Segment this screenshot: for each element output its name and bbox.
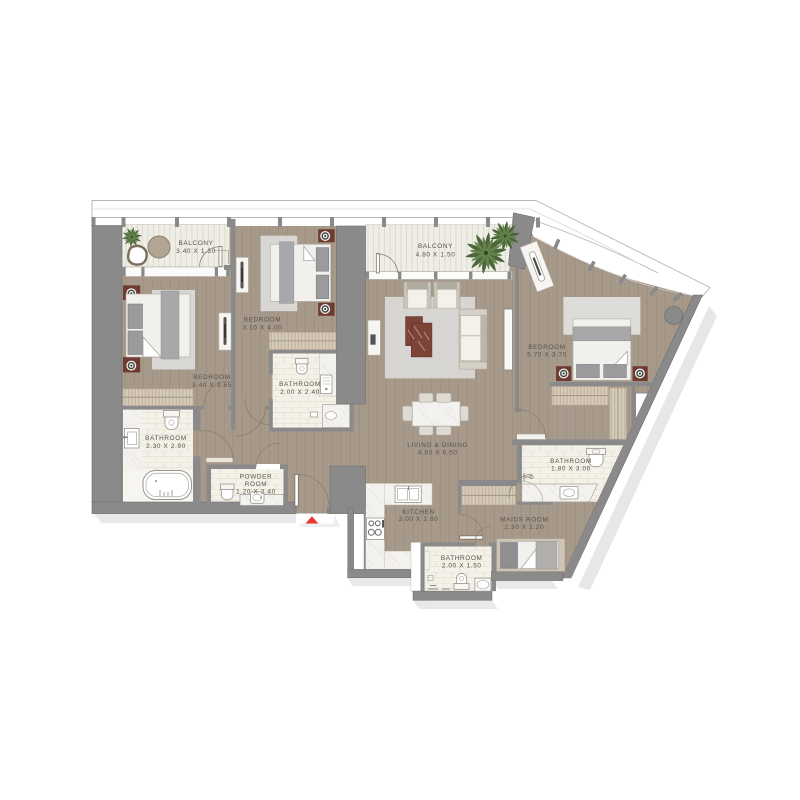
svg-text:BEDROOM: BEDROOM <box>528 344 566 351</box>
svg-text:2.00 X 2.40: 2.00 X 2.40 <box>280 389 320 396</box>
svg-text:1.80 X 3.00: 1.80 X 3.00 <box>551 466 591 473</box>
svg-text:BEDROOM: BEDROOM <box>244 317 282 324</box>
svg-text:ROOM: ROOM <box>245 481 267 488</box>
svg-text:5.70 X 3.70: 5.70 X 3.70 <box>527 352 567 359</box>
svg-text:LIVING & DINING: LIVING & DINING <box>407 442 468 449</box>
svg-text:1.20 X 2.40: 1.20 X 2.40 <box>236 489 276 496</box>
svg-text:4.80 X 1.50: 4.80 X 1.50 <box>416 252 456 259</box>
svg-text:3.00 X 2.80: 3.00 X 2.80 <box>399 516 439 523</box>
svg-text:BATHROOM: BATHROOM <box>279 381 321 388</box>
svg-text:4.80 X 6.50: 4.80 X 6.50 <box>418 449 458 456</box>
svg-text:BATHROOM: BATHROOM <box>441 555 483 562</box>
svg-text:2.30 X 2.90: 2.30 X 2.90 <box>146 443 186 450</box>
svg-text:MAIDS ROOM: MAIDS ROOM <box>500 517 548 524</box>
svg-text:BATHROOM: BATHROOM <box>550 458 592 465</box>
svg-text:BALCONY: BALCONY <box>178 240 213 247</box>
svg-text:3.40 X 3.65: 3.40 X 3.65 <box>192 382 232 389</box>
svg-text:3.40 X 1.30: 3.40 X 1.30 <box>176 248 216 255</box>
svg-text:BEDROOM: BEDROOM <box>193 374 231 381</box>
svg-text:KITCHEN: KITCHEN <box>402 509 435 516</box>
svg-text:2.30 X 2.20: 2.30 X 2.20 <box>504 524 544 531</box>
svg-text:3.10 X 4.00: 3.10 X 4.00 <box>243 325 283 332</box>
svg-text:POWDER: POWDER <box>240 474 273 481</box>
svg-text:BATHROOM: BATHROOM <box>145 435 187 442</box>
svg-text:2.00 X 1.50: 2.00 X 1.50 <box>442 563 482 570</box>
svg-text:BALCONY: BALCONY <box>418 243 453 250</box>
